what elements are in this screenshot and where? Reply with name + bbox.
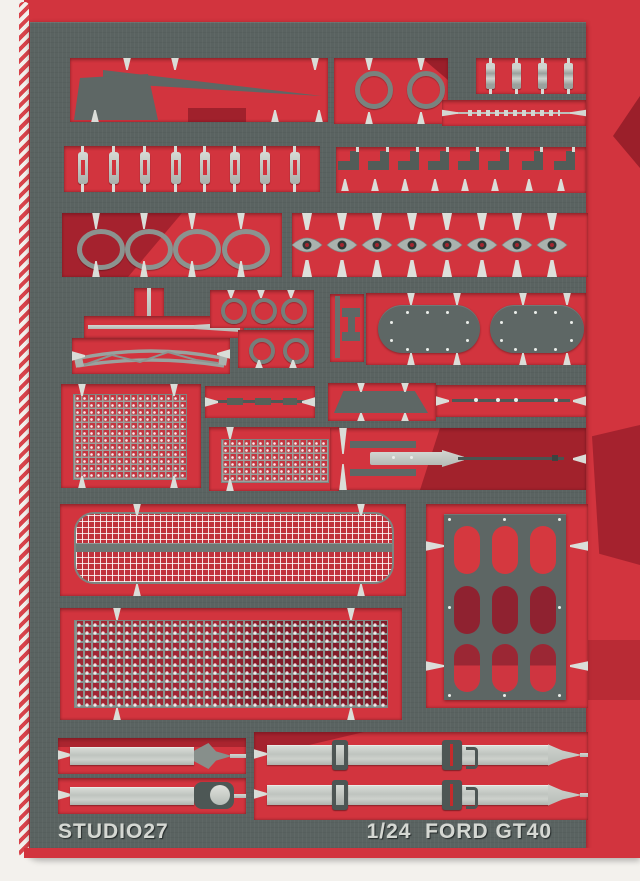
window-wiper-wedge <box>70 58 328 122</box>
pin <box>515 89 518 94</box>
slot-buckle-part <box>78 152 88 184</box>
pin <box>263 184 266 192</box>
window-oval-hole-plate <box>426 504 588 708</box>
ring-part <box>221 298 247 324</box>
bracket-rivet <box>410 456 413 459</box>
l-hook-part <box>366 147 396 193</box>
window-belt-tongue <box>58 738 246 774</box>
window-belt-ring <box>58 778 246 814</box>
pin <box>293 184 296 192</box>
tab <box>256 290 266 298</box>
plate-hole <box>492 526 518 574</box>
pin <box>540 147 543 152</box>
window-eyelet-chain <box>292 213 588 277</box>
tab <box>356 584 366 596</box>
tab <box>518 353 528 365</box>
tab <box>286 290 296 298</box>
slot-buckle-part <box>260 152 270 184</box>
pin <box>81 184 84 192</box>
plate-hole <box>492 586 518 634</box>
rod-rivet <box>496 398 500 402</box>
window-small-buckles <box>476 58 586 94</box>
belt-ring-part <box>210 785 230 805</box>
pin <box>386 147 389 152</box>
h-bracket-rail <box>335 296 340 358</box>
tab <box>112 708 122 720</box>
pin <box>203 184 206 192</box>
h-bracket-web <box>348 316 355 333</box>
plate-hole <box>454 526 480 574</box>
harness-loop <box>466 787 478 809</box>
l-hook-part <box>396 147 426 193</box>
tab <box>562 293 572 305</box>
pin <box>476 147 479 152</box>
window-rod-segments <box>205 386 315 418</box>
bracket-prong <box>350 441 416 448</box>
tab <box>406 293 416 305</box>
antenna-shaft-part <box>458 457 564 460</box>
louver-mesh-part <box>74 512 394 584</box>
pin <box>143 184 146 192</box>
tab <box>226 290 236 298</box>
wiper-blade-part <box>72 338 230 374</box>
pin <box>81 146 84 152</box>
window-wiper-blade <box>72 338 230 374</box>
pin <box>143 146 146 152</box>
louver-divider-bar <box>76 543 392 552</box>
mesh-grille-part <box>73 394 187 480</box>
flange-plate-part <box>378 305 480 353</box>
taper-end <box>442 109 458 117</box>
l-hook-part <box>456 147 486 193</box>
ring-part <box>251 298 277 324</box>
window-h-bracket <box>330 294 364 362</box>
pin <box>293 146 296 152</box>
window-dotted-rod <box>436 385 586 417</box>
tab <box>406 353 416 365</box>
card-print-shadow <box>588 640 640 700</box>
buckle-part <box>538 63 547 89</box>
pin <box>541 89 544 94</box>
window-bezel-rings-3 <box>210 290 314 328</box>
big-mesh-part <box>74 620 388 708</box>
oval-ring-part <box>125 229 173 270</box>
ring-part <box>281 298 307 324</box>
rod-segment <box>283 398 297 405</box>
tab <box>225 427 235 439</box>
taper-end <box>570 109 586 117</box>
plate-hole <box>454 644 480 692</box>
window-big-mesh <box>60 608 402 720</box>
photo-etch-fret: STUDIO27 1/24 FORD GT40 <box>30 22 586 848</box>
ring-part <box>355 71 393 109</box>
pin <box>489 58 492 63</box>
tab <box>436 395 449 407</box>
card-print-shadow <box>610 92 640 172</box>
rod-rivet <box>474 398 478 402</box>
plate-hole <box>492 644 518 692</box>
tab <box>338 428 348 454</box>
pin <box>515 58 518 63</box>
window-harness-straps <box>254 732 588 820</box>
pin <box>174 146 177 152</box>
oval-ring-part <box>222 229 270 270</box>
tail-pin <box>580 753 588 757</box>
harness-tail-part <box>548 741 582 769</box>
pin <box>416 147 419 152</box>
pin <box>489 89 492 94</box>
ring-part <box>249 338 275 364</box>
tab <box>302 396 315 408</box>
tab <box>346 708 356 720</box>
tail-pin <box>580 793 588 797</box>
window-square-mesh <box>61 384 201 488</box>
tab <box>356 383 366 392</box>
oval-ring-part <box>173 229 221 270</box>
bag-edge-stripe <box>19 2 29 857</box>
window-bezel-rings-2 <box>238 330 314 368</box>
eyelet-parts <box>292 213 588 277</box>
mesh-strip-part <box>221 439 329 483</box>
buckle-part <box>564 63 573 89</box>
pin <box>446 147 449 152</box>
pin <box>567 89 570 94</box>
antenna-bead <box>552 455 558 461</box>
flange-plate-part <box>490 305 584 353</box>
pin <box>174 184 177 192</box>
pin <box>541 58 544 63</box>
print-shadow <box>58 738 246 747</box>
plate-hole <box>454 586 480 634</box>
pin <box>567 58 570 63</box>
tab <box>426 660 444 672</box>
trapezoid-part <box>334 391 428 413</box>
bracket-rivet <box>392 456 395 459</box>
bead-row <box>468 110 560 116</box>
h-bracket-arm <box>342 332 360 341</box>
pin <box>112 146 115 152</box>
rod-part <box>452 399 570 402</box>
plate-hole <box>530 586 556 634</box>
tab <box>254 788 267 800</box>
pin <box>112 184 115 192</box>
tab <box>570 540 588 552</box>
card-print-shadow <box>592 425 640 565</box>
tab <box>346 608 356 620</box>
rod-rivet <box>514 398 518 402</box>
tab <box>400 413 410 421</box>
rod-segment <box>227 398 243 405</box>
tab <box>236 213 246 229</box>
l-hook-part <box>520 147 550 193</box>
plate-hole <box>530 644 556 692</box>
pin <box>263 146 266 152</box>
buckle-part <box>486 63 495 89</box>
tab <box>518 293 528 305</box>
pin <box>203 146 206 152</box>
tab <box>573 395 586 407</box>
harness-tail-part <box>548 781 582 809</box>
pin <box>233 146 236 152</box>
oval-hole-plate-part <box>444 514 566 700</box>
tab <box>132 584 142 596</box>
tab <box>356 413 366 421</box>
ring-tip <box>234 794 246 798</box>
ring-part <box>283 338 309 364</box>
tab <box>400 383 410 392</box>
window-rivet-flanges <box>366 293 586 365</box>
harness-strap-part <box>267 745 549 765</box>
tab <box>570 660 588 672</box>
l-hook-part <box>552 147 582 193</box>
tab <box>452 293 462 305</box>
tab <box>205 396 218 408</box>
tab <box>364 112 374 124</box>
slot-buckle-part <box>200 152 210 184</box>
belt-strap-part <box>70 787 194 805</box>
slot-buckle-part <box>140 152 150 184</box>
brand-label: STUDIO27 <box>58 820 169 844</box>
plate-hole <box>530 526 556 574</box>
slot-buckle-part <box>171 152 181 184</box>
tab <box>112 608 122 620</box>
harness-strap-part <box>267 785 549 805</box>
pin <box>572 147 575 152</box>
scale-title-label: 1/24 FORD GT40 <box>367 820 552 844</box>
tongue-tip <box>230 754 246 758</box>
wedge-parts <box>70 58 328 122</box>
harness-loop <box>466 747 478 769</box>
harness-adjuster <box>332 780 348 810</box>
tab <box>426 540 444 552</box>
window-oval-flanges <box>62 213 282 277</box>
l-hook-part <box>336 147 366 193</box>
tab <box>416 112 426 124</box>
belt-strap-part <box>70 747 194 765</box>
window-mesh-strip <box>209 427 339 491</box>
window-louver-mesh <box>60 504 406 596</box>
tab <box>364 58 374 70</box>
oval-ring-part <box>77 229 125 270</box>
slot-buckle-part <box>290 152 300 184</box>
window-antenna-assembly <box>330 428 586 490</box>
tab <box>187 213 197 229</box>
bracket-body-part <box>370 452 448 465</box>
window-bead-strip <box>442 100 586 126</box>
window-hose-rings <box>334 58 448 124</box>
pin <box>356 147 359 152</box>
window-trapezoid-plate <box>328 383 436 421</box>
l-hook-part <box>486 147 516 193</box>
rod-segment <box>255 398 271 405</box>
tab <box>338 464 348 490</box>
wiper-arm-part <box>88 325 208 329</box>
tab <box>452 353 462 365</box>
scan-bottom-edge <box>24 848 640 858</box>
rod-rivet <box>554 398 558 402</box>
harness-buckle <box>442 780 462 810</box>
slot-buckle-part <box>109 152 119 184</box>
ring-part <box>407 71 445 109</box>
window-slot-buckles <box>64 146 320 192</box>
l-hook-part <box>426 147 456 193</box>
bracket-prong <box>350 469 416 476</box>
tab <box>562 353 572 365</box>
slot-buckle-part <box>230 152 240 184</box>
pin <box>506 147 509 152</box>
harness-adjuster <box>332 740 348 770</box>
buckle-part <box>512 63 521 89</box>
harness-buckle <box>442 740 462 770</box>
pin <box>233 184 236 192</box>
window-l-hooks <box>336 147 586 193</box>
